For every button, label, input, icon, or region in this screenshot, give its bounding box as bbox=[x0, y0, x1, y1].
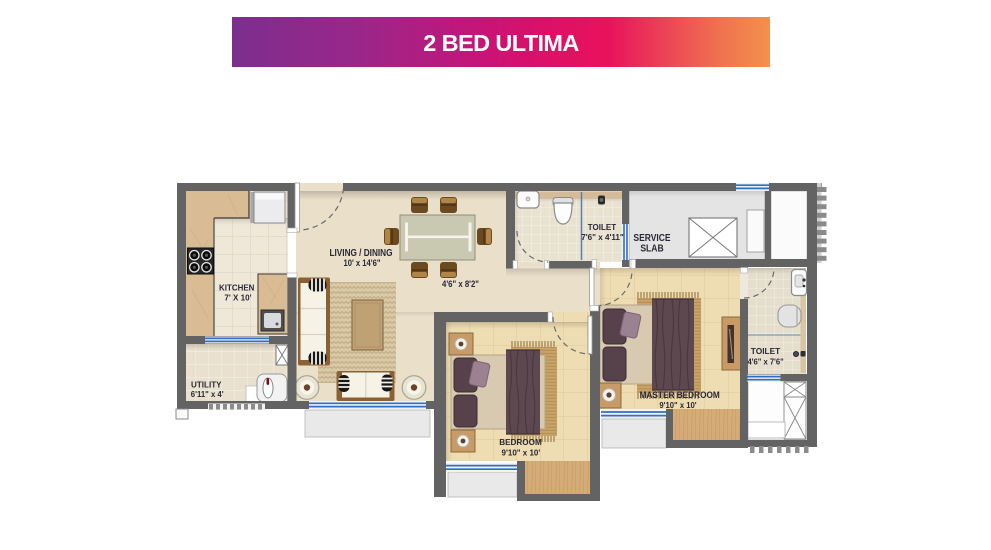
svg-text:7'6" x 4'11": 7'6" x 4'11" bbox=[581, 232, 624, 242]
svg-text:4'6" x 8'2": 4'6" x 8'2" bbox=[442, 279, 479, 290]
svg-text:4'6" x 7'6": 4'6" x 7'6" bbox=[747, 357, 783, 366]
svg-text:KITCHEN: KITCHEN bbox=[219, 283, 254, 293]
svg-text:9'10" x 10': 9'10" x 10' bbox=[659, 400, 696, 410]
svg-text:UTILITY: UTILITY bbox=[191, 379, 222, 389]
svg-text:9'10" x 10': 9'10" x 10' bbox=[502, 448, 541, 457]
svg-text:10' x 14'6": 10' x 14'6" bbox=[344, 258, 381, 268]
svg-text:SLAB: SLAB bbox=[640, 243, 663, 254]
svg-text:7' X 10': 7' X 10' bbox=[224, 294, 251, 303]
svg-text:6'11" x 4': 6'11" x 4' bbox=[191, 389, 224, 399]
svg-text:TOILET: TOILET bbox=[751, 346, 781, 356]
svg-text:BEDROOM: BEDROOM bbox=[499, 437, 542, 447]
svg-text:MASTER BEDROOM: MASTER BEDROOM bbox=[640, 390, 720, 400]
svg-text:TOILET: TOILET bbox=[588, 222, 616, 232]
